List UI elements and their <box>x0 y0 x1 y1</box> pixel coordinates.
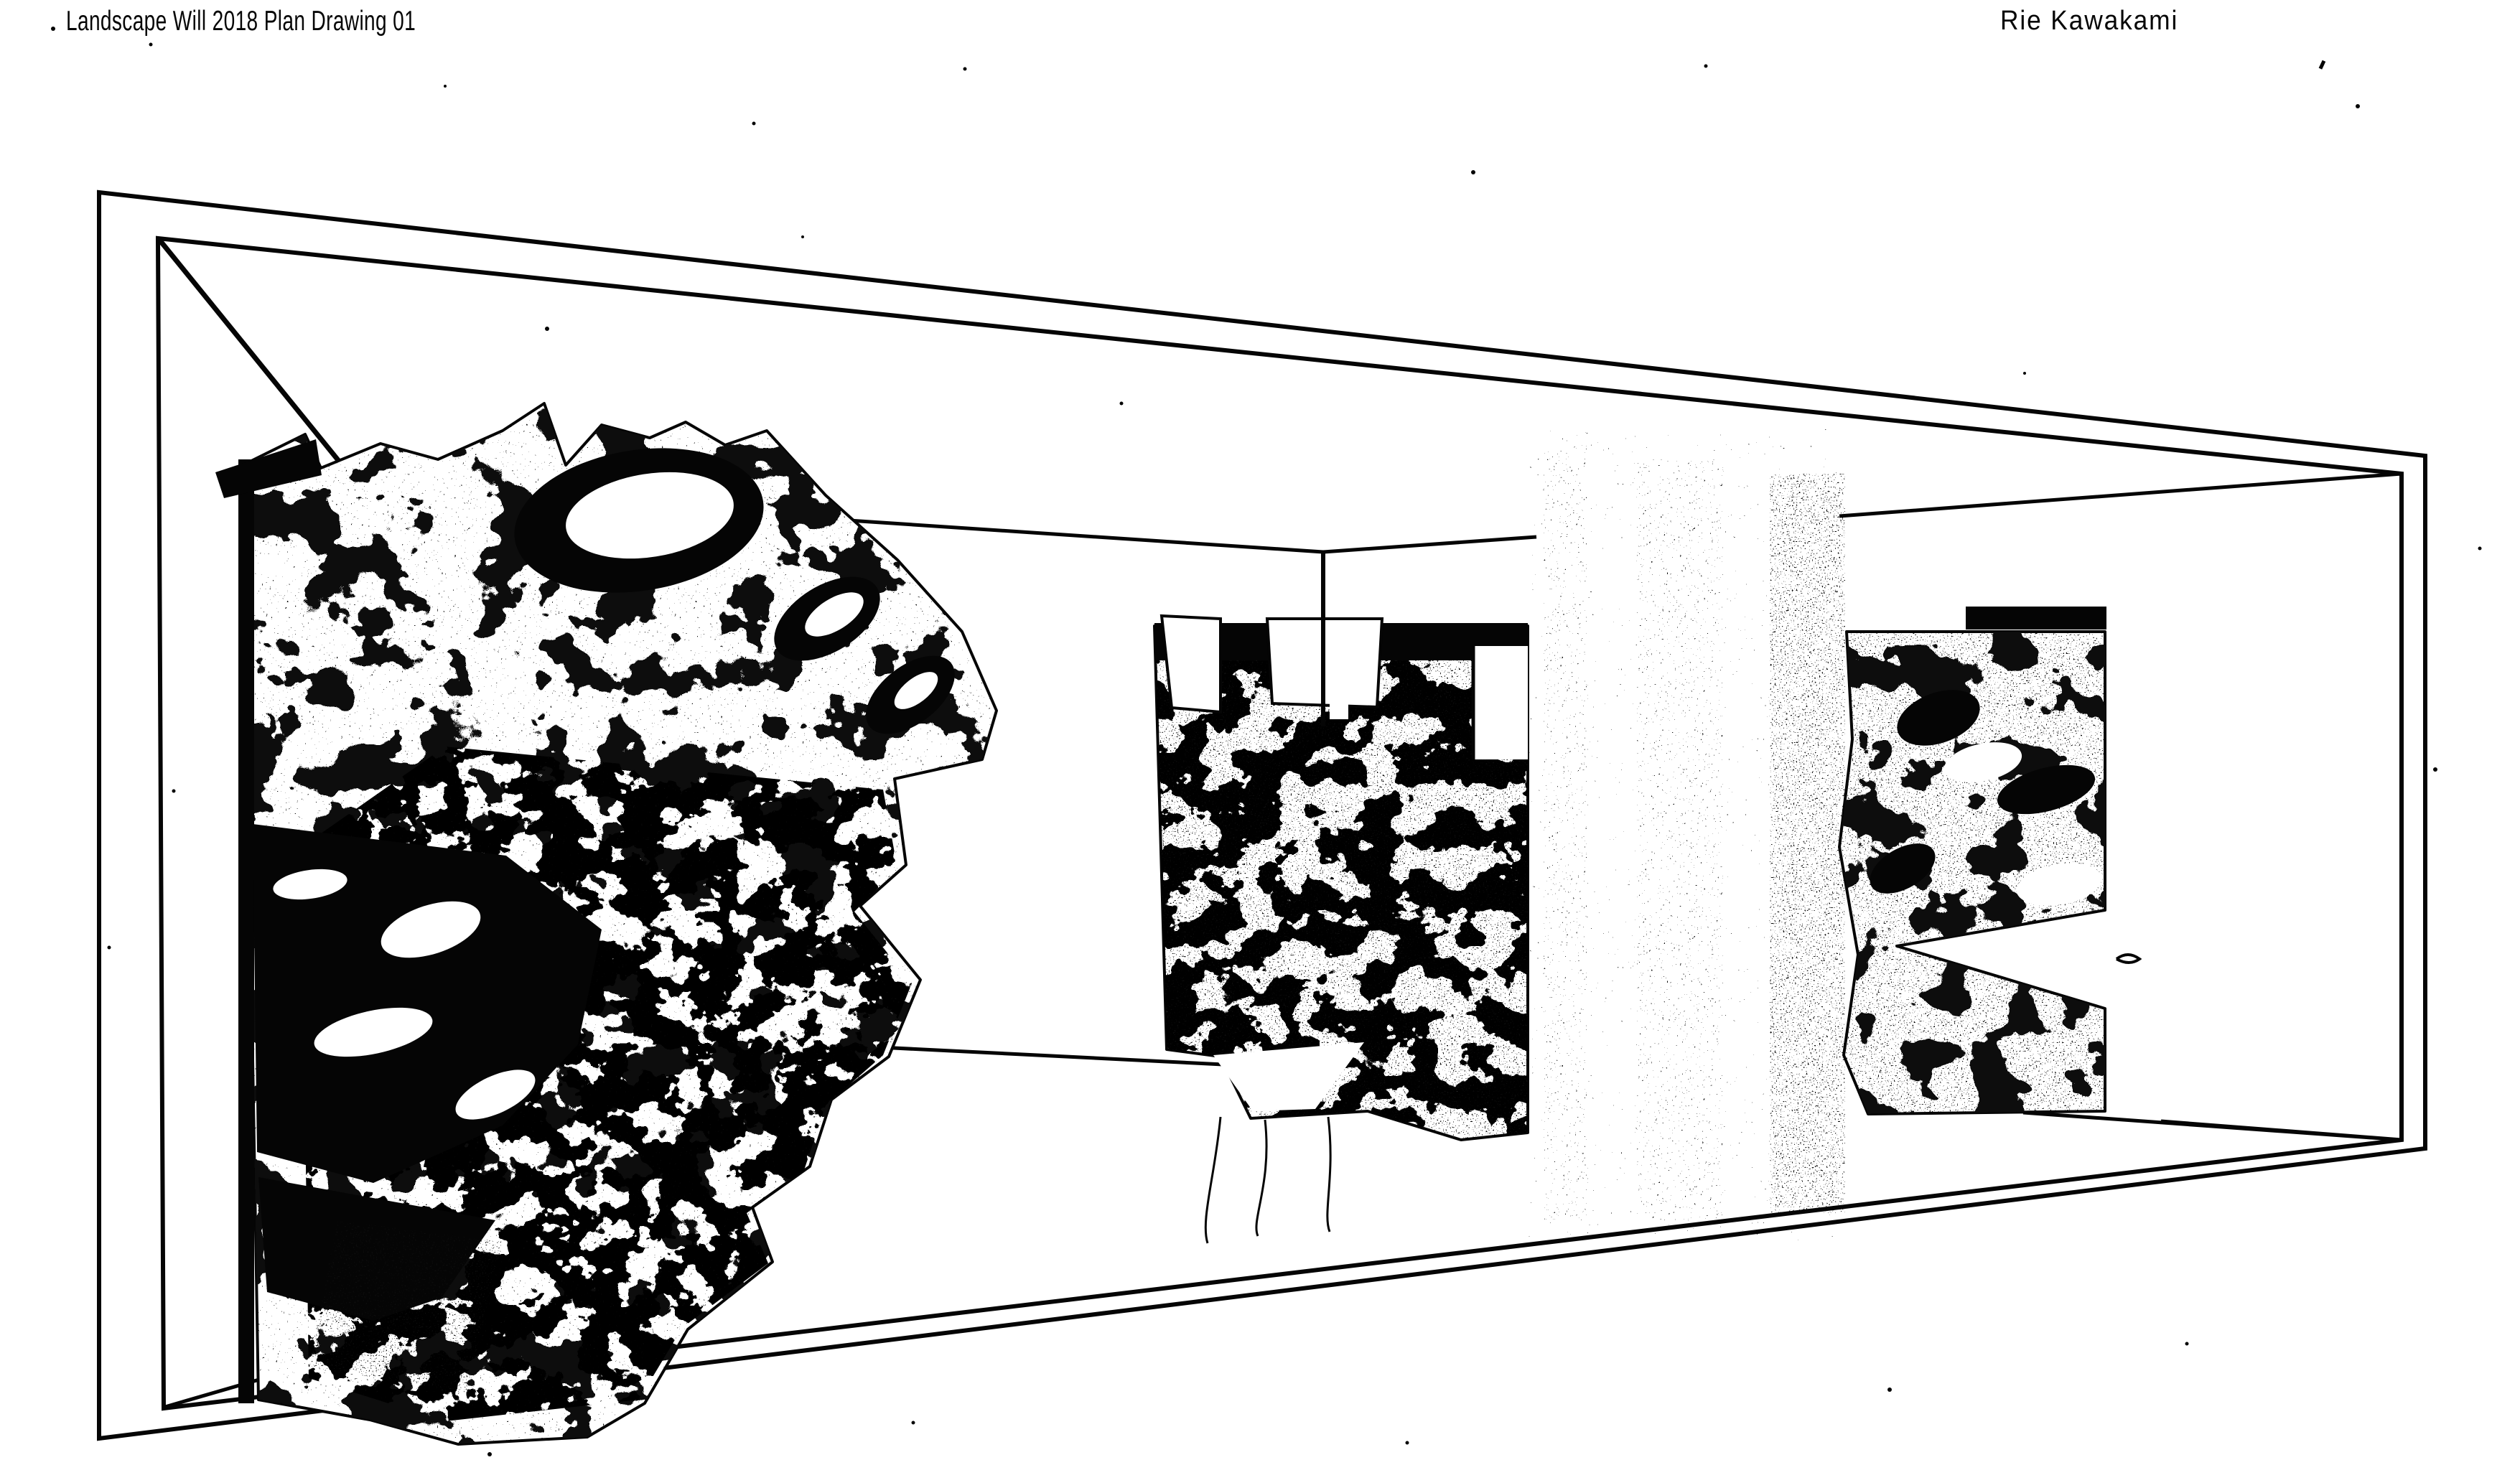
scanned-plan-page: Landscape Will 2018 Plan Drawing 01 Rie … <box>0 0 2520 1460</box>
middle-structure <box>1154 616 1528 1243</box>
squiggle-mark <box>2117 955 2139 963</box>
drawing-title: Landscape Will 2018 Plan Drawing 01 <box>66 6 416 37</box>
artist-name: Rie Kawakami <box>2000 6 2178 37</box>
right-structure <box>1839 607 2139 1114</box>
mesh-strands <box>1205 1117 1330 1243</box>
left-structure-edge-bar <box>238 459 254 1403</box>
smudge-band <box>1770 474 1845 1213</box>
scan-smudge <box>1528 429 1845 1240</box>
smudge-band <box>1637 459 1723 1220</box>
ceiling-edge-right <box>1323 474 2402 552</box>
smudge-band <box>1544 445 1587 1220</box>
right-structure-top-bar <box>1966 607 2106 630</box>
right-notch <box>1473 646 1528 759</box>
floor-edge-right <box>2023 1113 2402 1140</box>
corner-slit <box>1330 647 1348 719</box>
top-notch <box>1162 616 1221 712</box>
plan-drawing-canvas <box>0 0 2520 1460</box>
left-structure <box>215 403 997 1444</box>
